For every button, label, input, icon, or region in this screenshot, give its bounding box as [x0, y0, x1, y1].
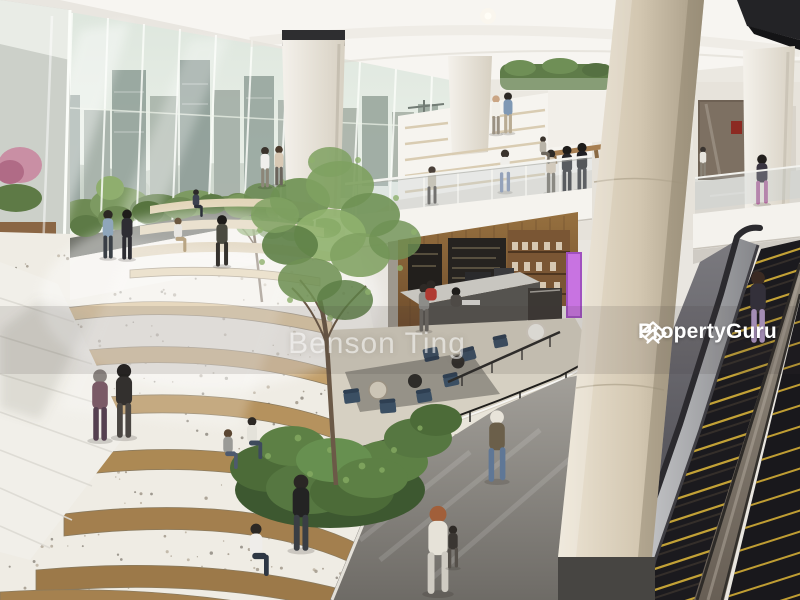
propertyguru-roof-chevrons-icon: [638, 320, 668, 350]
round-table: [369, 381, 387, 399]
scene-render: [0, 0, 800, 600]
listing-photo: Benson Ting PropertyGuru: [0, 0, 800, 600]
storefront-sign: [731, 121, 742, 134]
person-figure: [451, 287, 462, 306]
propertyguru-logo: PropertyGuru: [638, 320, 777, 344]
person-figure: [425, 280, 436, 300]
column-terrace: [448, 56, 492, 156]
round-table: [408, 374, 422, 388]
